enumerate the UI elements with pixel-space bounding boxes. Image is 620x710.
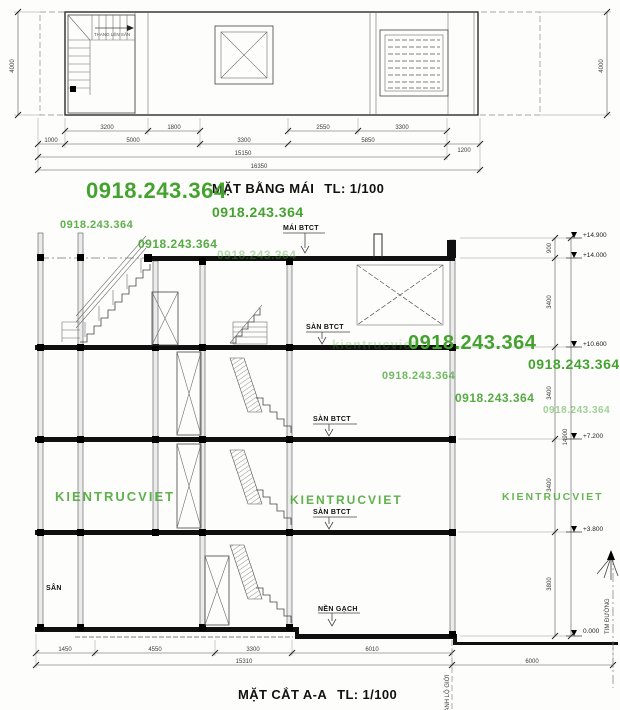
plan-dimensions: 3200 1800 2550 3300 1000 5000 3300 5850 … — [35, 125, 483, 173]
dim-label: 3200 — [100, 125, 114, 131]
vent-pipe — [374, 234, 382, 257]
roof-plan-scale: TL: 1/100 — [324, 181, 384, 196]
stair-floor3 — [230, 358, 291, 433]
elevation-label: +3.800 — [583, 526, 603, 533]
watermark-phone: 0918.243.364 — [408, 332, 536, 355]
dim-label: 14900 — [563, 428, 569, 445]
watermark-brand: KIENTRUCVIET — [55, 489, 175, 504]
section-bottom-dims: 1450 4550 3300 6010 15310 6000 — [33, 634, 616, 668]
watermark-phone: 0918.243.364 — [528, 356, 620, 372]
dim-label: 1450 — [58, 647, 72, 653]
dim-label: 6010 — [365, 647, 379, 653]
road-centerline-label: TIM ĐƯỜNG — [604, 598, 611, 634]
elevation-label: 0.000 — [583, 628, 600, 635]
dim-label: 3300 — [246, 647, 260, 653]
dim-label: 3300 — [395, 125, 409, 131]
dim-label: 1000 — [44, 138, 58, 144]
section-slabs — [35, 240, 618, 645]
dim-label: 3400 — [547, 295, 553, 309]
elevation-flag: +10.600 — [566, 341, 607, 348]
dim-label: 3400 — [547, 386, 553, 400]
roof-plan-title: MẶT BẰNG MÁITL: 1/100 — [212, 181, 384, 196]
watermark-phone: 0918.243.364 — [86, 178, 227, 204]
watermark-phone: 0918.243.364 — [60, 219, 133, 231]
dim-label: 4550 — [148, 647, 162, 653]
lot-boundary — [40, 12, 540, 115]
dim-label: 3800 — [547, 577, 553, 591]
section-scale: TL: 1/100 — [337, 687, 397, 702]
dim-label: 900 — [547, 242, 553, 253]
roof-walls — [135, 12, 474, 115]
dim-label: 16350 — [251, 164, 268, 170]
terrace-stair — [62, 236, 150, 342]
dim-label: 4000 — [599, 59, 605, 73]
section-title-text: MẶT CẮT A-A — [238, 687, 327, 702]
elevation-flag: +14.000 — [566, 252, 607, 259]
roof-louver — [380, 30, 448, 96]
stair-ground — [230, 545, 291, 623]
elevation-label: +14.000 — [583, 252, 607, 259]
dim-label: 5000 — [126, 138, 140, 144]
watermark-phone: 0918.243.364 — [138, 237, 217, 251]
elevation-label: +14.900 — [583, 232, 607, 239]
watermark-phone: 0918.243.364 — [382, 370, 455, 382]
elevation-markers: +14.900 +14.000 +10.600 +7.200 +3.800 0.… — [566, 232, 607, 636]
dim-label: 2550 — [316, 125, 330, 131]
elevation-flag: +3.800 — [566, 526, 603, 533]
watermark-phone: 0918.243.364 — [212, 204, 304, 220]
elevation-label: +10.600 — [583, 341, 607, 348]
roof-plan: THANG LÊN SÂN 3200 1800 2550 3300 1000 5… — [10, 9, 611, 173]
section-right-dims: 900 3400 3400 3400 3800 14900 — [458, 235, 576, 639]
floor-slab-label: SÀN BTCT — [313, 507, 351, 516]
elevation-flag: +14.900 — [566, 232, 607, 239]
dim-label: 4000 — [10, 59, 16, 73]
architectural-drawing-canvas: THANG LÊN SÂN 3200 1800 2550 3300 1000 5… — [0, 0, 620, 710]
dim-label: 3400 — [547, 478, 553, 492]
section-title: MẶT CẮT A-ATL: 1/100 — [238, 687, 397, 702]
section-drawing: MÁI BTCT SÀN BTCT SÀN BTCT SÀN BTCT NỀN … — [33, 223, 618, 710]
roof-slab-label: MÁI BTCT — [283, 223, 319, 232]
watermark-brand: KIENTRUCVIET — [502, 491, 604, 503]
dim-label: 15150 — [235, 151, 252, 157]
watermark-phone: 0918.243.364 — [217, 248, 296, 262]
watermark-brand: KIENTRUCVIET — [332, 337, 417, 352]
watermark-phone: 0918.243.364 — [455, 391, 534, 405]
road-direction-symbol — [597, 550, 618, 580]
dim-label: 6000 — [525, 659, 539, 665]
dim-label: 1800 — [167, 125, 181, 131]
dim-label: 3300 — [237, 138, 251, 144]
plan-side-dims: 4000 4000 — [10, 9, 611, 118]
door-panels — [152, 292, 229, 625]
stair-note: THANG LÊN SÂN — [94, 30, 130, 37]
floor-slab-label: SÀN BTCT — [313, 414, 351, 423]
roof-stair-plan: THANG LÊN SÂN — [68, 15, 135, 113]
ground-finish-label: NỀN GẠCH — [318, 603, 358, 613]
boundary-line-label: RANH LỘ GIỚI — [444, 674, 451, 710]
elevation-flag: +7.200 — [566, 433, 603, 440]
terrace-inner-stair — [230, 305, 267, 344]
dim-label: 5850 — [361, 138, 375, 144]
floor-slab-label: SÀN BTCT — [306, 322, 344, 331]
stair-direction-arrow — [127, 25, 134, 31]
yard-label: SÂN — [46, 583, 62, 592]
elevation-label: +7.200 — [583, 433, 603, 440]
roof-skylight — [215, 26, 273, 84]
watermark-brand: KIENTRUCVIET — [290, 493, 403, 507]
dim-label: 1200 — [457, 148, 471, 154]
drawing-svg: THANG LÊN SÂN 3200 1800 2550 3300 1000 5… — [0, 0, 620, 710]
dim-label: 15310 — [236, 659, 253, 665]
roof-plan-title-text: MẶT BẰNG MÁI — [212, 181, 314, 196]
stair-floor2 — [230, 450, 291, 525]
roof-void — [357, 234, 443, 325]
watermark-phone: 0918.243.364 — [543, 405, 610, 416]
